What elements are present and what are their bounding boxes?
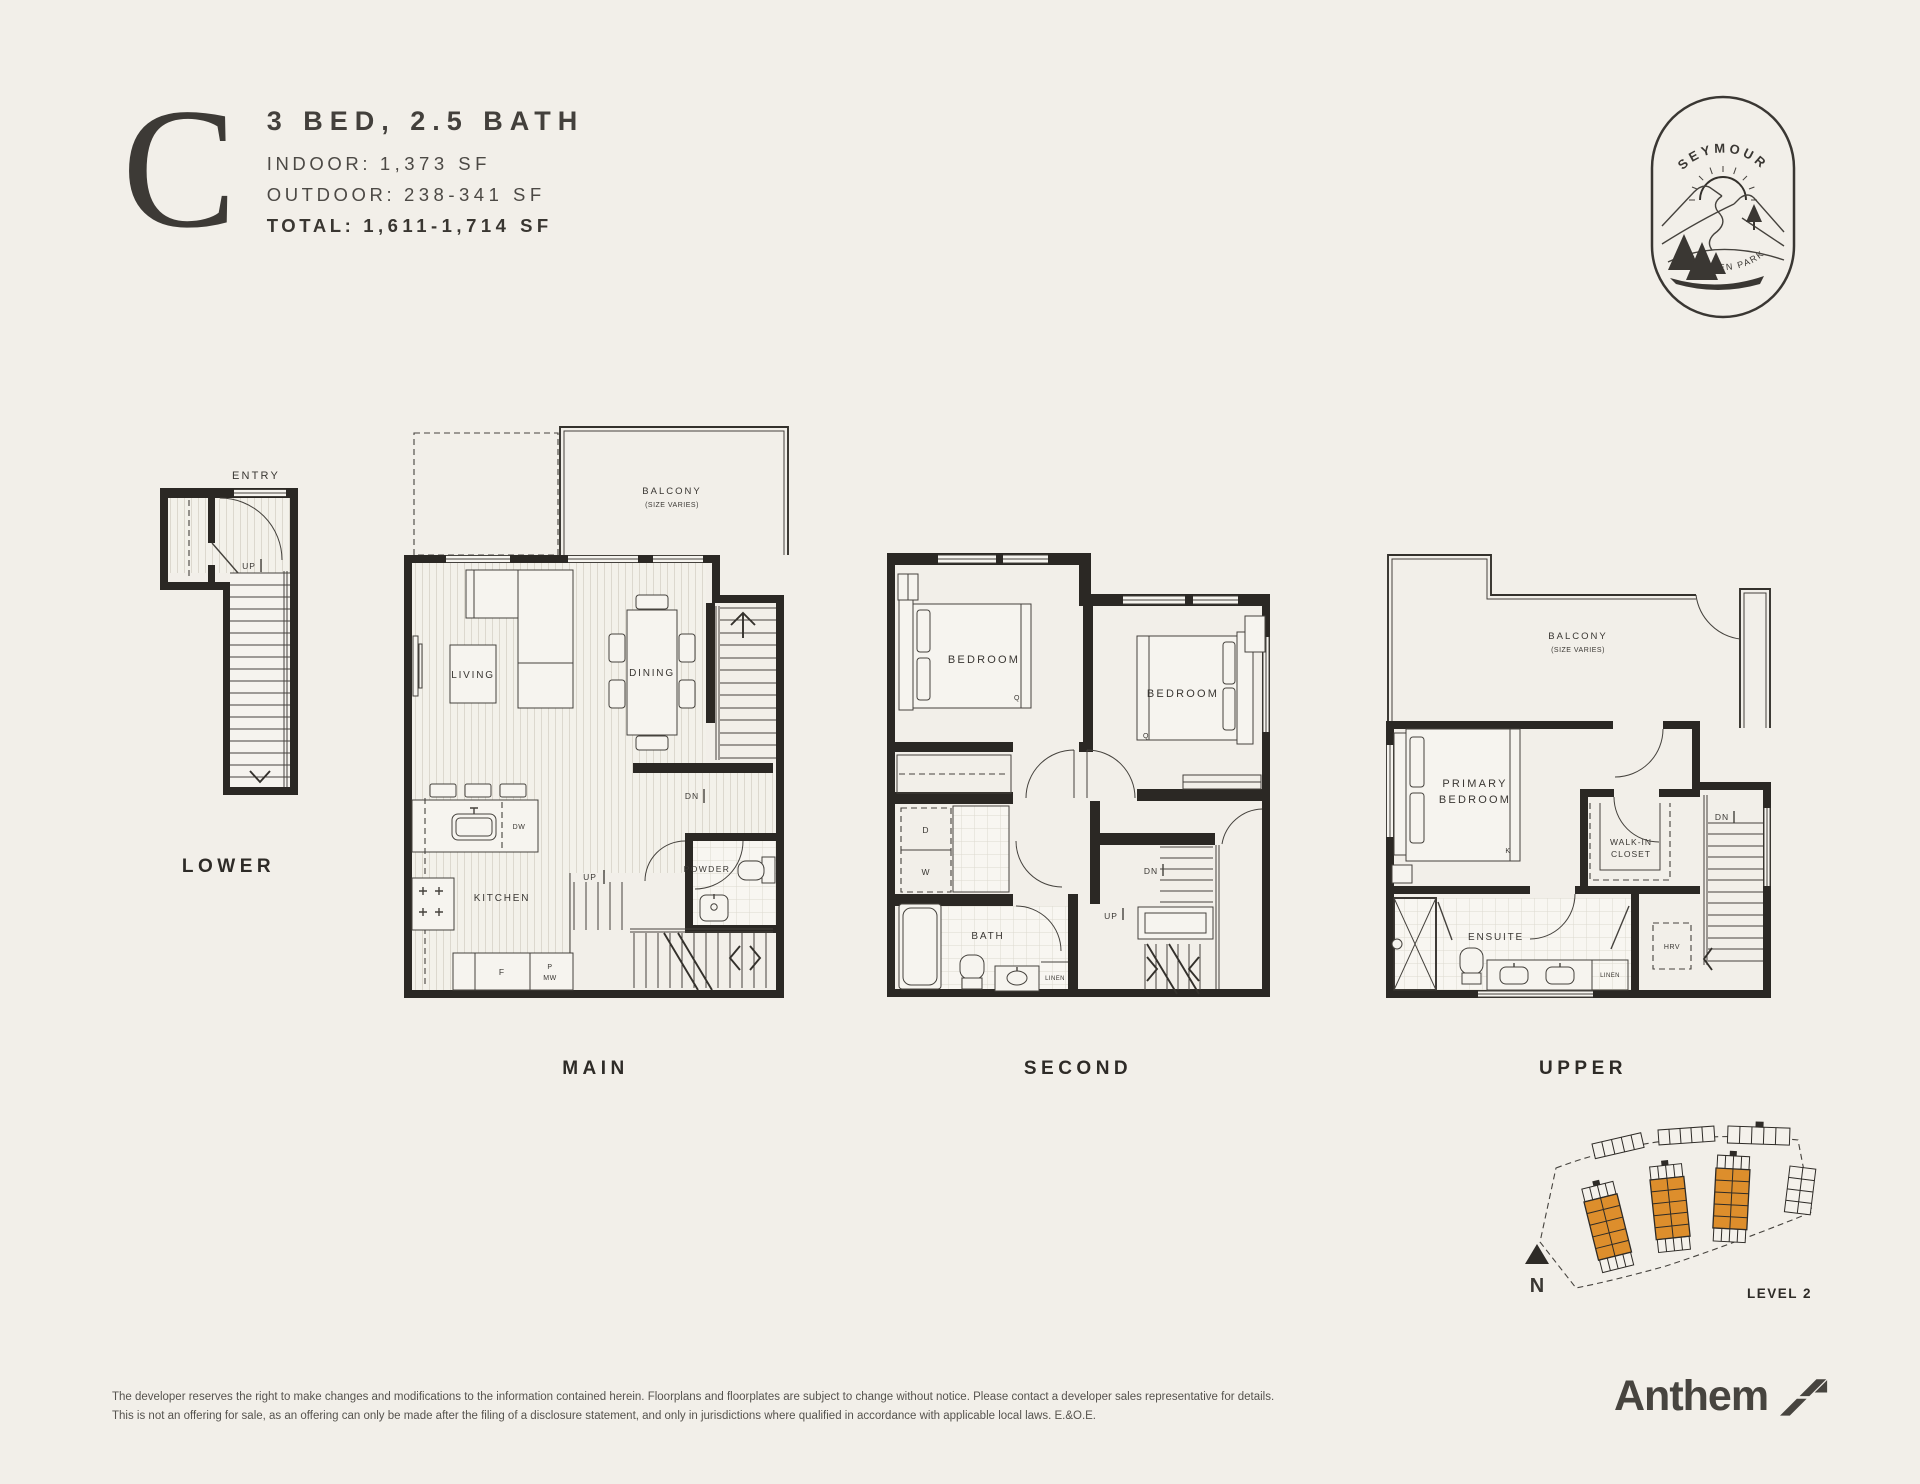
compass-label: N — [1530, 1275, 1544, 1297]
primary-bed-size: K — [1505, 848, 1510, 855]
kitchen-label: KITCHEN — [474, 893, 531, 904]
fridge-label: F — [499, 967, 505, 977]
bedroom-left-bed-size: Q — [1014, 695, 1020, 702]
hrv-label: HRV — [1664, 944, 1680, 951]
closet-door-arc — [1614, 797, 1659, 842]
level-label: LEVEL 2 — [1747, 1286, 1812, 1301]
ensuite-label: ENSUITE — [1468, 932, 1524, 943]
balcony-sub-label: (SIZE VARIES) — [1551, 647, 1605, 654]
dn-label: DN — [1144, 866, 1158, 876]
outdoor-area: OUTDOOR: 238-341 SF — [267, 184, 585, 206]
dn-label: DN — [685, 791, 699, 801]
dn-label: DN — [1715, 812, 1729, 822]
anthem-arrow-icon — [1780, 1376, 1828, 1418]
balcony-door-arc — [1696, 595, 1740, 639]
plan-letter: C — [122, 96, 237, 244]
living-label: LIVING — [451, 670, 495, 681]
upper-balcony: BALCONY (SIZE VARIES) — [1388, 555, 1770, 729]
indoor-area: INDOOR: 1,373 SF — [267, 153, 585, 175]
primary-label-line2: BEDROOM — [1439, 794, 1511, 806]
bedroom-door-arc — [1615, 729, 1663, 777]
outdoor-label: OUTDOOR: — [267, 184, 396, 205]
dishwasher-label: DW — [513, 824, 526, 831]
indoor-value: 1,373 SF — [380, 153, 491, 174]
anthem-wordmark: Anthem — [1614, 1376, 1768, 1416]
entry-window — [234, 490, 286, 497]
plan-header: C 3 BED, 2.5 BATH INDOOR: 1,373 SF OUTDO… — [122, 96, 584, 244]
site-buildings-outline — [1592, 1121, 1816, 1215]
up-label: UP — [583, 872, 597, 882]
pantry-label: P — [547, 964, 552, 971]
washer-label: W — [921, 867, 930, 877]
linen-label: LINEN — [1600, 973, 1620, 979]
floor-name-upper: UPPER — [1378, 1058, 1788, 1080]
badge-oval — [1652, 97, 1794, 317]
plan-info: 3 BED, 2.5 BATH INDOOR: 1,373 SF OUTDOOR… — [267, 96, 585, 244]
main-stairs-down — [716, 606, 776, 760]
outdoor-value: 238-341 SF — [404, 184, 546, 205]
dining-label: DINING — [629, 668, 675, 679]
bath-label: BATH — [971, 931, 1004, 942]
bedroom-right-bed-size: Q — [1143, 733, 1149, 740]
up-label: UP — [1104, 911, 1118, 921]
pine-trees-icon — [1668, 204, 1764, 290]
anthem-logo: Anthem — [1614, 1376, 1828, 1418]
balcony-sub-label: (SIZE VARIES) — [645, 502, 699, 509]
total-label: TOTAL: — [267, 215, 355, 236]
roof-overhang-dashed — [414, 433, 558, 555]
site-key-plan: N LEVEL 2 — [1498, 1118, 1828, 1318]
toilet-icon — [960, 955, 984, 979]
floorplan-lower: ENTRY UP — [146, 455, 311, 805]
plan-title: 3 BED, 2.5 BATH — [267, 106, 585, 137]
bedroom-right-furniture — [1137, 616, 1265, 789]
fridge-pantry-counter — [453, 953, 573, 990]
bathtub-icon — [899, 904, 941, 989]
toilet-icon — [738, 861, 764, 880]
closet-left — [897, 755, 1011, 793]
floor-name-second: SECOND — [883, 1058, 1273, 1080]
linen-label: LINEN — [1045, 976, 1065, 982]
disclaimer-line2: This is not an offering for sale, as an … — [112, 1407, 1412, 1426]
floor-name-main: MAIN — [398, 1058, 793, 1080]
closet-label-line1: WALK-IN — [1610, 837, 1652, 847]
entry-label: ENTRY — [232, 470, 280, 482]
balcony-label: BALCONY — [1548, 631, 1607, 642]
up-label: UP — [242, 561, 256, 571]
stair-shaft-floor — [230, 573, 290, 787]
closet-label-line2: CLOSET — [1611, 849, 1651, 859]
total-area: TOTAL: 1,611-1,714 SF — [267, 215, 585, 237]
powder-label: POWDER — [684, 864, 731, 874]
floorplan-sheet: C 3 BED, 2.5 BATH INDOOR: 1,373 SF OUTDO… — [0, 0, 1920, 1484]
tv-icon — [413, 636, 418, 696]
floorplan-second: BEDROOM Q D W BEDROOM Q — [883, 542, 1273, 1004]
stove — [412, 878, 454, 930]
main-windows — [446, 556, 703, 563]
floor-name-lower: LOWER — [146, 856, 311, 878]
disclaimer-line1: The developer reserves the right to make… — [112, 1388, 1412, 1407]
toilet-icon — [1460, 948, 1483, 974]
bedroom-left-label: BEDROOM — [948, 654, 1020, 666]
laundry-floor — [953, 806, 1009, 892]
floorplan-main: BALCONY (SIZE VARIES) — [398, 418, 793, 1003]
dryer-label: D — [922, 825, 929, 835]
total-value: 1,611-1,714 SF — [363, 215, 553, 236]
site-highlighted-buildings — [1580, 1150, 1751, 1273]
seymour-badge-logo: SEYMOUR AT BADEN PARK — [1648, 92, 1798, 322]
disclaimer: The developer reserves the right to make… — [112, 1388, 1412, 1426]
balcony-label: BALCONY — [642, 486, 701, 497]
bedroom-left-furniture — [898, 574, 1031, 710]
bedroom-right-label: BEDROOM — [1147, 688, 1219, 700]
indoor-label: INDOOR: — [267, 153, 371, 174]
primary-bedroom-furniture — [1392, 729, 1520, 883]
north-compass-icon: N — [1525, 1244, 1549, 1297]
main-balcony: BALCONY (SIZE VARIES) — [560, 427, 788, 555]
hall-door-arcs — [1016, 750, 1262, 887]
primary-label-line1: PRIMARY — [1442, 778, 1507, 790]
floorplan-upper: BALCONY (SIZE VARIES) — [1378, 443, 1788, 1003]
microwave-label: MW — [543, 975, 556, 982]
ensuite-vanity — [1487, 960, 1592, 990]
